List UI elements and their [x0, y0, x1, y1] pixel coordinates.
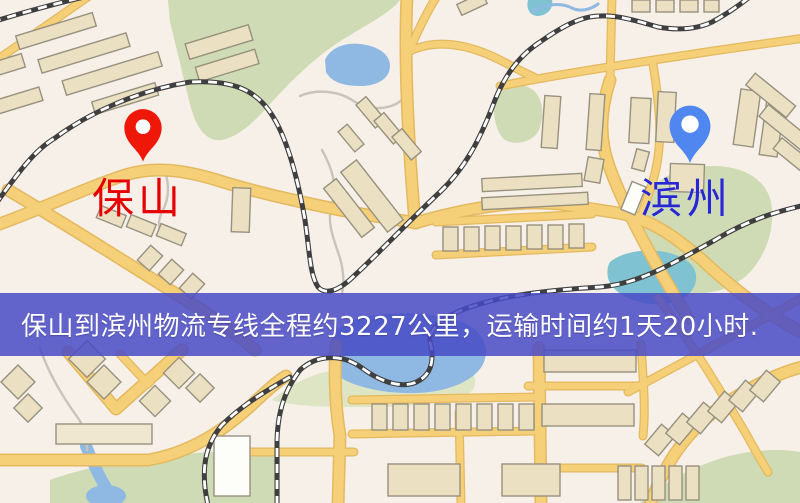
destination-pin-icon[interactable] — [667, 102, 713, 168]
map-background[interactable] — [0, 0, 800, 503]
origin-pin-icon[interactable] — [122, 104, 164, 168]
route-info-banner: 保山到滨州物流专线全程约3227公里，运输时间约1天20小时. — [0, 293, 800, 356]
origin-label: 保山 — [92, 178, 184, 220]
route-info-text: 保山到滨州物流专线全程约3227公里，运输时间约1天20小时. — [0, 306, 759, 343]
destination-label: 滨州 — [640, 178, 732, 220]
map-canvas[interactable]: 保山 滨州 保山到滨州物流专线全程约3227公里，运输时间约1天20小时. — [0, 0, 800, 503]
